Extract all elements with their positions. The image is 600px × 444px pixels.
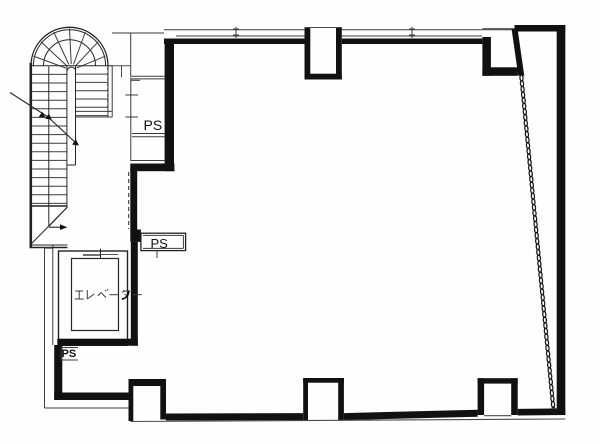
svg-text:PS: PS [144, 117, 163, 133]
svg-text:PS: PS [151, 236, 169, 251]
svg-text:PS: PS [62, 348, 77, 360]
